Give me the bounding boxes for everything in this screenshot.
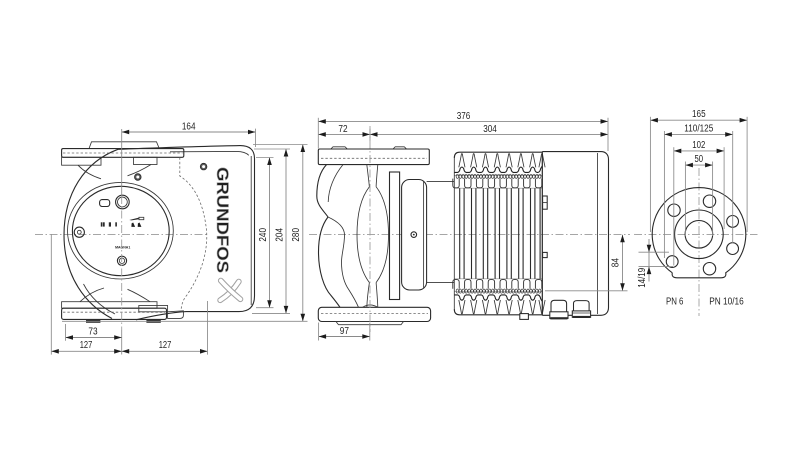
svg-text:84: 84 [611, 258, 622, 268]
svg-text:165: 165 [692, 109, 706, 120]
svg-text:304: 304 [483, 124, 497, 135]
svg-text:PN 10/16: PN 10/16 [709, 296, 744, 307]
svg-text:72: 72 [338, 124, 348, 135]
svg-text:127: 127 [159, 340, 172, 351]
svg-text:280: 280 [291, 228, 302, 242]
svg-text:50: 50 [695, 154, 704, 165]
svg-text:127: 127 [80, 340, 93, 351]
svg-text:73: 73 [88, 327, 98, 338]
svg-text:164: 164 [182, 122, 196, 133]
svg-text:MAGNA1: MAGNA1 [115, 246, 130, 250]
svg-text:PN 6: PN 6 [666, 296, 684, 307]
svg-text:376: 376 [457, 111, 471, 122]
svg-text:14/19: 14/19 [637, 267, 648, 287]
svg-text:204: 204 [274, 228, 285, 242]
svg-text:GRUNDFOS: GRUNDFOS [213, 167, 232, 273]
svg-text:97: 97 [340, 326, 350, 337]
svg-text:110/125: 110/125 [684, 123, 713, 134]
svg-text:240: 240 [258, 228, 269, 242]
svg-text:102: 102 [692, 140, 705, 151]
